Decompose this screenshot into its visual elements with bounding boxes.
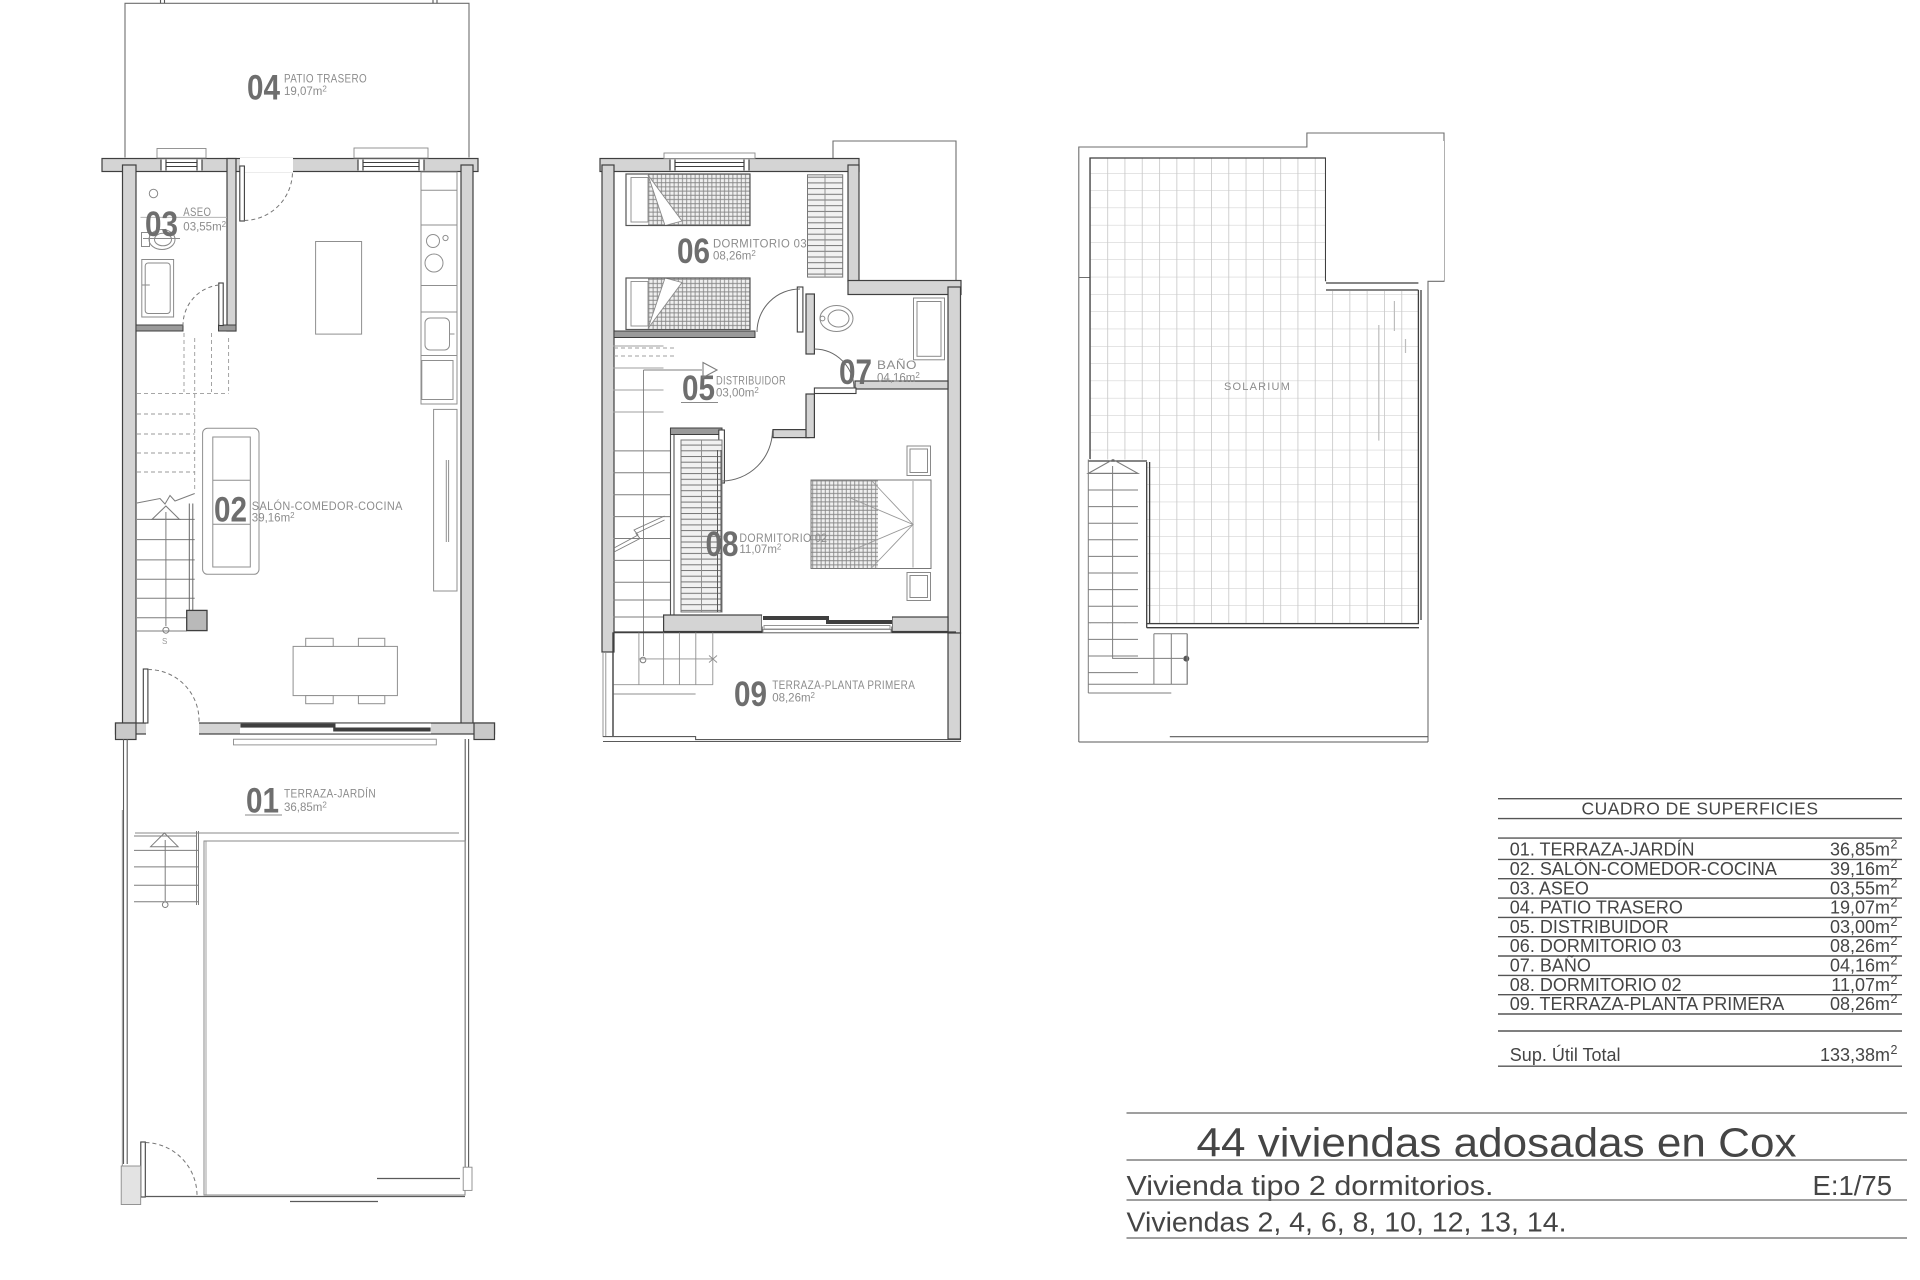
svg-text:09. TERRAZA-PLANTA PRIMERA: 09. TERRAZA-PLANTA PRIMERA xyxy=(1510,994,1784,1014)
svg-text:08,26m: 08,26m xyxy=(1830,994,1890,1014)
svg-text:07. BAÑO: 07. BAÑO xyxy=(1510,955,1591,976)
svg-text:02. SALÓN-COMEDOR-COCINA: 02. SALÓN-COMEDOR-COCINA xyxy=(1510,858,1777,879)
svg-text:07: 07 xyxy=(839,353,872,392)
svg-text:06: 06 xyxy=(677,232,710,271)
svg-text:CUADRO DE SUPERFICIES: CUADRO DE SUPERFICIES xyxy=(1581,799,1818,819)
svg-text:04: 04 xyxy=(247,69,280,108)
svg-text:08,26m2: 08,26m2 xyxy=(713,249,756,263)
svg-text:04. PATIO TRASERO: 04. PATIO TRASERO xyxy=(1510,898,1683,918)
svg-text:2: 2 xyxy=(1891,973,1898,987)
svg-text:08: 08 xyxy=(706,525,739,564)
svg-text:04,16m: 04,16m xyxy=(1830,956,1890,976)
svg-text:Viviendas 2, 4, 6, 8, 10, 12,: Viviendas 2, 4, 6, 8, 10, 12, 13, 14. xyxy=(1127,1207,1567,1238)
svg-text:S: S xyxy=(162,637,167,646)
svg-text:DORMITORIO 03: DORMITORIO 03 xyxy=(713,239,807,251)
svg-text:08. DORMITORIO 02: 08. DORMITORIO 02 xyxy=(1510,975,1682,995)
svg-text:11,07m2: 11,07m2 xyxy=(739,543,782,557)
svg-text:2: 2 xyxy=(1891,857,1898,871)
svg-text:06. DORMITORIO 03: 06. DORMITORIO 03 xyxy=(1510,936,1682,956)
svg-text:2: 2 xyxy=(1891,992,1898,1006)
svg-text:44 viviendas adosadas en Cox: 44 viviendas adosadas en Cox xyxy=(1197,1120,1798,1166)
svg-text:09: 09 xyxy=(734,675,767,714)
svg-text:36,85m2: 36,85m2 xyxy=(284,801,327,815)
svg-text:39,16m2: 39,16m2 xyxy=(252,511,295,525)
svg-text:PATIO TRASERO: PATIO TRASERO xyxy=(284,73,367,85)
svg-text:2: 2 xyxy=(1891,915,1898,929)
svg-text:03,55m: 03,55m xyxy=(1830,878,1890,898)
svg-text:36,85m: 36,85m xyxy=(1830,840,1890,860)
svg-text:BAÑO: BAÑO xyxy=(877,359,917,372)
svg-text:2: 2 xyxy=(1891,838,1898,852)
svg-text:08,26m2: 08,26m2 xyxy=(772,691,815,705)
svg-text:133,38m: 133,38m xyxy=(1820,1045,1890,1065)
svg-text:SOLARIUM: SOLARIUM xyxy=(1224,381,1291,393)
svg-text:2: 2 xyxy=(1891,954,1898,968)
svg-text:ASEO: ASEO xyxy=(183,207,211,219)
svg-text:03,00m: 03,00m xyxy=(1830,917,1890,937)
svg-text:Sup. Útil Total: Sup. Útil Total xyxy=(1510,1044,1621,1065)
svg-text:TERRAZA-JARDÍN: TERRAZA-JARDÍN xyxy=(284,788,376,801)
svg-text:04,16m2: 04,16m2 xyxy=(877,371,920,385)
svg-text:05. DISTRIBUIDOR: 05. DISTRIBUIDOR xyxy=(1510,917,1669,937)
svg-text:03,55m2: 03,55m2 xyxy=(183,220,226,234)
svg-text:19,07m: 19,07m xyxy=(1830,898,1890,918)
svg-text:11,07m: 11,07m xyxy=(1831,975,1890,995)
svg-text:03. ASEO: 03. ASEO xyxy=(1510,878,1589,898)
svg-text:02: 02 xyxy=(214,491,247,530)
svg-text:TERRAZA-PLANTA PRIMERA: TERRAZA-PLANTA PRIMERA xyxy=(772,680,915,692)
svg-text:2: 2 xyxy=(1891,1043,1898,1057)
svg-text:39,16m: 39,16m xyxy=(1830,859,1890,879)
svg-text:DISTRIBUIDOR: DISTRIBUIDOR xyxy=(716,376,786,388)
svg-text:E:1/75: E:1/75 xyxy=(1812,1170,1892,1201)
svg-text:2: 2 xyxy=(1891,896,1898,910)
svg-text:Vivienda tipo 2 dormitorios.: Vivienda tipo 2 dormitorios. xyxy=(1127,1170,1494,1201)
svg-text:01. TERRAZA-JARDÍN: 01. TERRAZA-JARDÍN xyxy=(1510,840,1695,860)
svg-text:19,07m2: 19,07m2 xyxy=(284,85,327,99)
svg-text:03,00m2: 03,00m2 xyxy=(716,386,759,400)
svg-text:2: 2 xyxy=(1891,876,1898,890)
svg-text:2: 2 xyxy=(1891,934,1898,948)
svg-text:08,26m: 08,26m xyxy=(1830,936,1890,956)
svg-text:SALÓN-COMEDOR-COCINA: SALÓN-COMEDOR-COCINA xyxy=(252,500,403,513)
